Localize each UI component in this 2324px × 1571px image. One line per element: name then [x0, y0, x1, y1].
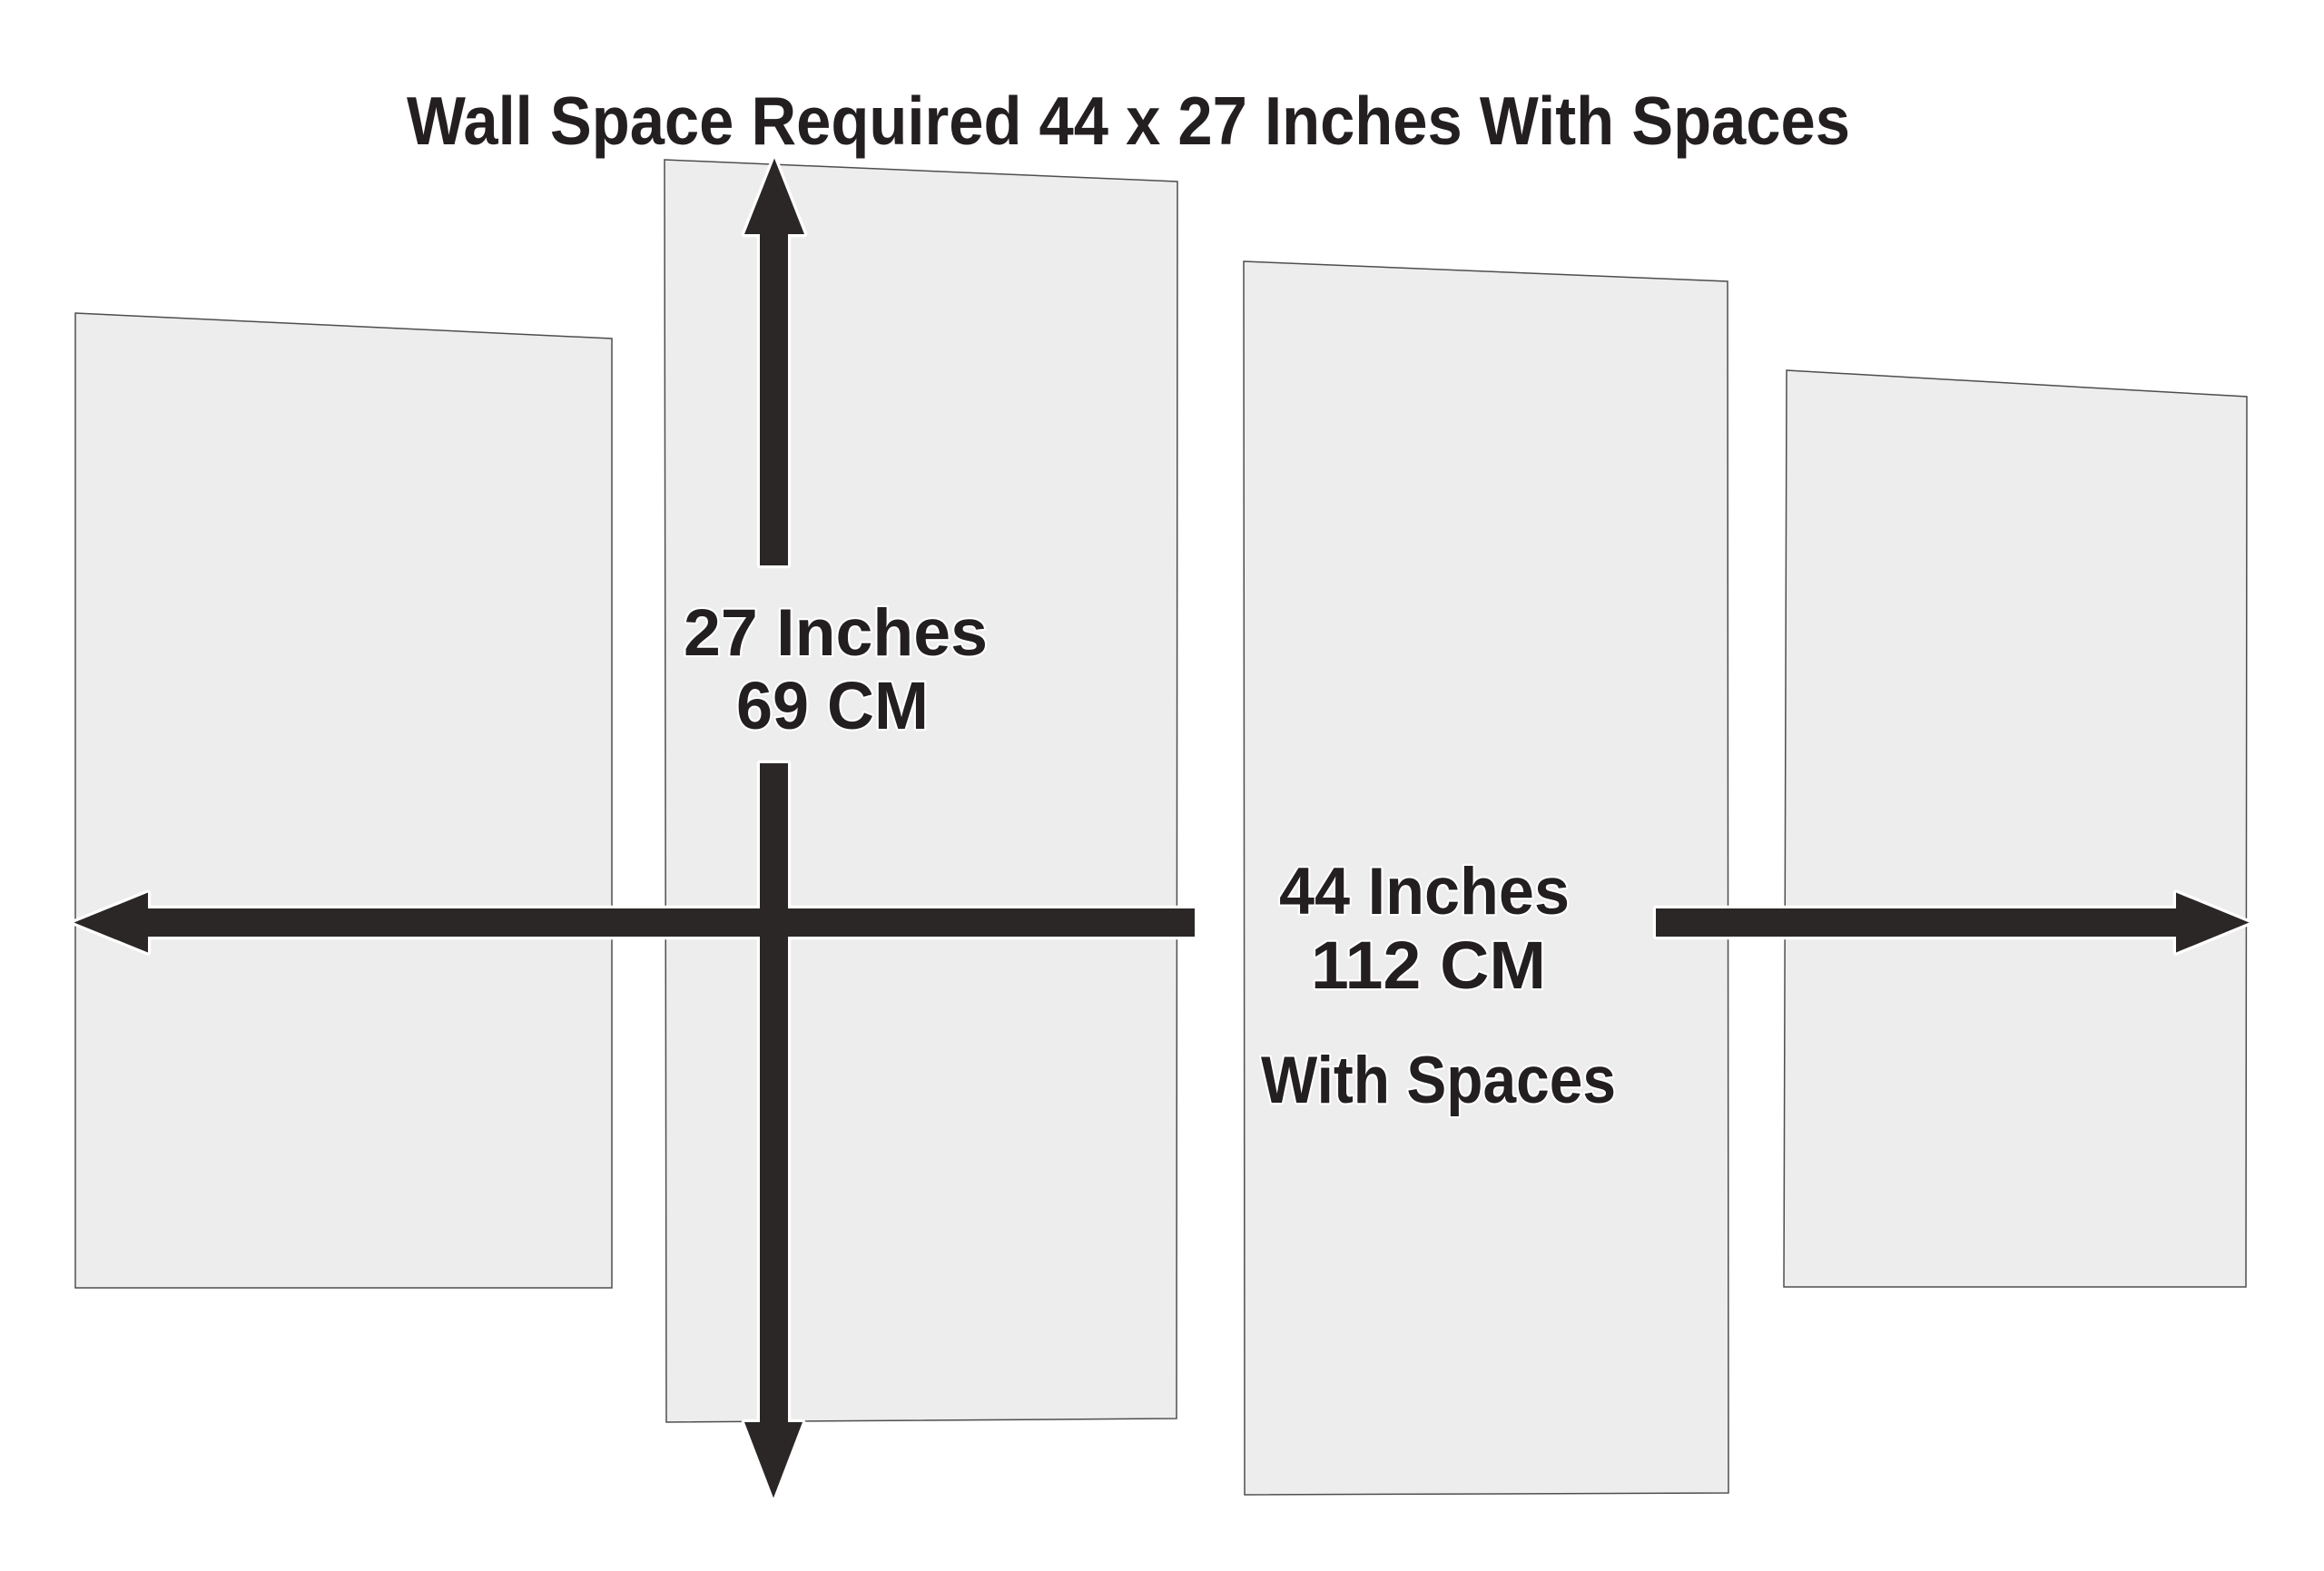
svg-text:Wall Space Required 44 x 27 In: Wall Space Required 44 x 27 Inches With … [407, 83, 1850, 159]
svg-text:112 CM: 112 CM [1311, 928, 1546, 1003]
svg-text:With Spaces: With Spaces [1261, 1044, 1616, 1117]
svg-text:69 CM: 69 CM [736, 668, 929, 743]
svg-text:27 Inches: 27 Inches [684, 596, 988, 670]
svg-text:44 Inches: 44 Inches [1279, 855, 1570, 928]
